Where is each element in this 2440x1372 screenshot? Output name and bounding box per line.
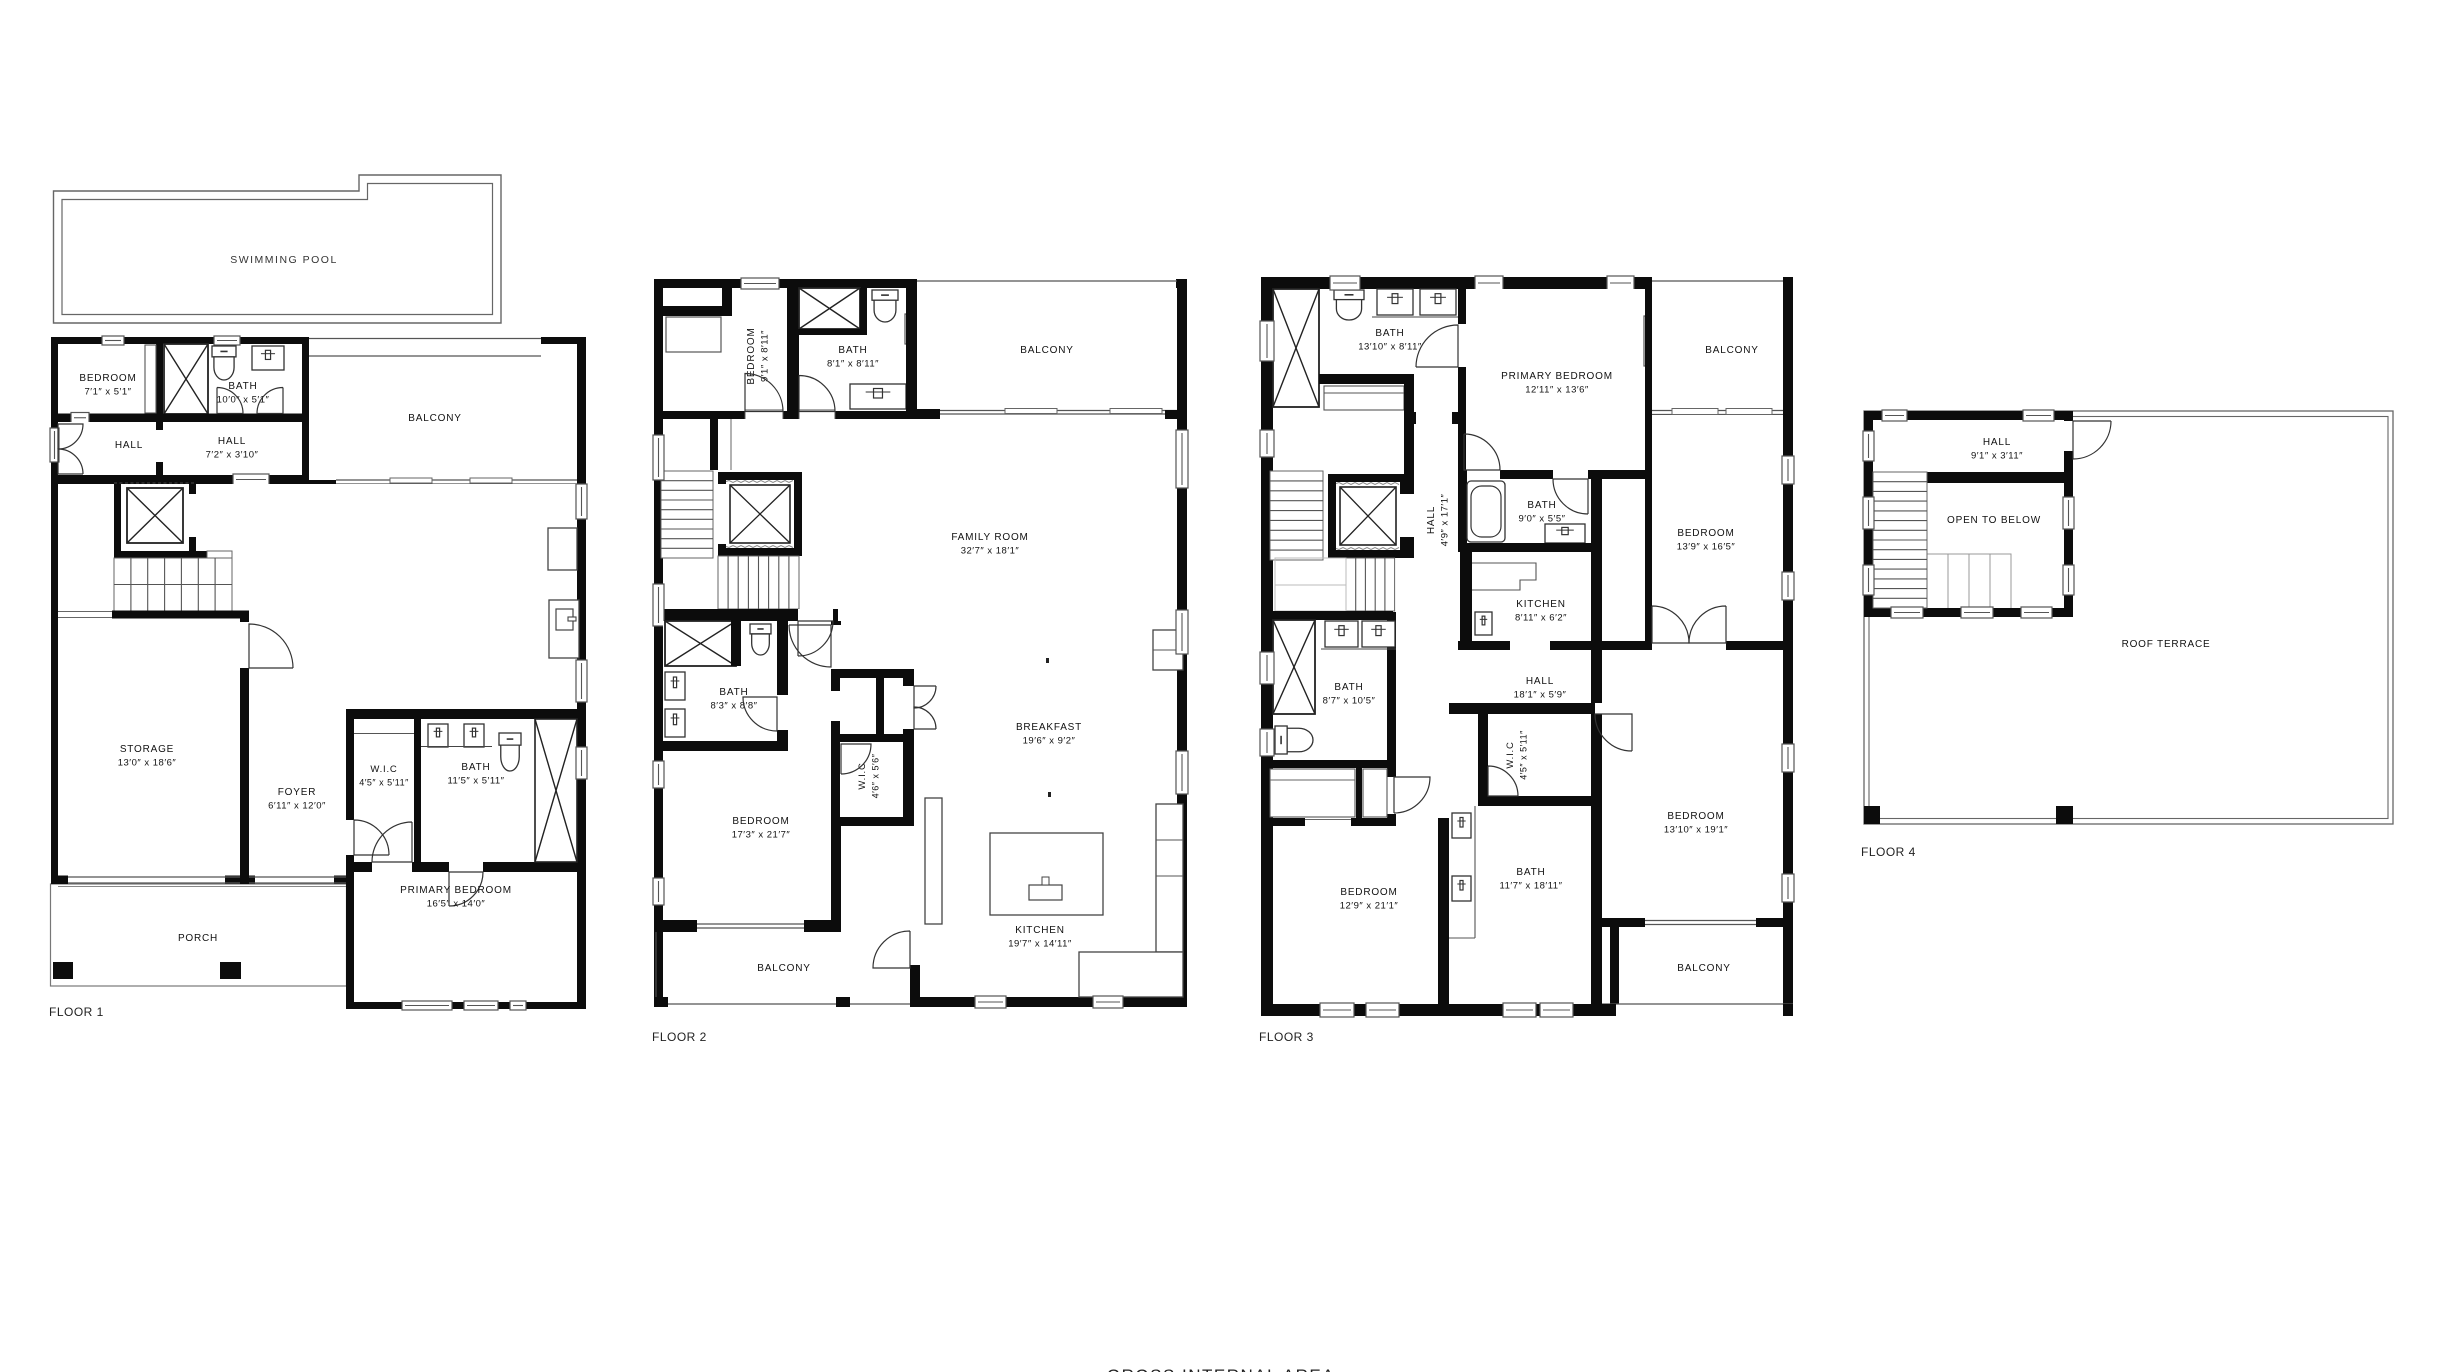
svg-text:HALL: HALL	[1426, 506, 1437, 534]
svg-text:12′11″ x 13′6″: 12′11″ x 13′6″	[1525, 385, 1589, 396]
svg-text:HALL: HALL	[1983, 437, 2011, 448]
svg-text:12′9″ x 21′1″: 12′9″ x 21′1″	[1340, 901, 1399, 912]
svg-text:FLOOR 4: FLOOR 4	[1861, 845, 1916, 859]
svg-text:13′9″ x 16′5″: 13′9″ x 16′5″	[1677, 542, 1736, 553]
svg-text:FLOOR 2: FLOOR 2	[652, 1030, 707, 1044]
svg-text:8′11″ x 6′2″: 8′11″ x 6′2″	[1515, 613, 1567, 624]
svg-text:OPEN TO BELOW: OPEN TO BELOW	[1947, 515, 2041, 526]
svg-text:W.I.C: W.I.C	[857, 762, 868, 789]
svg-text:FLOOR 3: FLOOR 3	[1259, 1030, 1314, 1044]
svg-text:BEDROOM: BEDROOM	[1667, 811, 1724, 822]
svg-text:4′5″ x 5′11″: 4′5″ x 5′11″	[1519, 730, 1529, 780]
svg-text:HALL: HALL	[1526, 676, 1554, 687]
svg-text:FLOOR 1: FLOOR 1	[49, 1005, 104, 1019]
svg-text:STORAGE: STORAGE	[120, 744, 174, 755]
svg-text:18′1″ x 5′9″: 18′1″ x 5′9″	[1514, 690, 1567, 701]
svg-text:BEDROOM: BEDROOM	[1677, 528, 1734, 539]
svg-text:BALCONY: BALCONY	[1705, 345, 1758, 356]
svg-text:11′7″ x 18′11″: 11′7″ x 18′11″	[1500, 881, 1563, 892]
svg-text:11′5″ x 5′11″: 11′5″ x 5′11″	[447, 776, 504, 787]
svg-text:KITCHEN: KITCHEN	[1015, 925, 1065, 936]
svg-text:13′10″ x 19′1″: 13′10″ x 19′1″	[1664, 825, 1728, 836]
svg-text:BEDROOM: BEDROOM	[1340, 887, 1397, 898]
svg-text:BATH: BATH	[1334, 682, 1363, 693]
svg-text:GROSS INTERNAL AREA: GROSS INTERNAL AREA	[1107, 1366, 1335, 1372]
svg-text:9′1″ x 3′11″: 9′1″ x 3′11″	[1971, 451, 2023, 462]
svg-text:W.I.C: W.I.C	[1505, 741, 1516, 768]
svg-text:BALCONY: BALCONY	[408, 413, 461, 424]
svg-text:13′0″ x 18′6″: 13′0″ x 18′6″	[118, 758, 177, 769]
svg-text:BEDROOM: BEDROOM	[79, 373, 136, 384]
svg-text:PORCH: PORCH	[178, 933, 218, 944]
svg-text:13′10″ x 8′11″: 13′10″ x 8′11″	[1358, 342, 1422, 353]
svg-text:8′7″ x 10′5″: 8′7″ x 10′5″	[1323, 696, 1376, 707]
svg-text:8′3″ x 8′8″: 8′3″ x 8′8″	[711, 701, 758, 712]
svg-text:BALCONY: BALCONY	[1677, 963, 1730, 974]
svg-text:9′1″ x 8′11″: 9′1″ x 8′11″	[760, 330, 771, 382]
svg-text:HALL: HALL	[115, 440, 143, 451]
svg-text:FAMILY ROOM: FAMILY ROOM	[951, 532, 1028, 543]
svg-text:7′1″ x 5′1″: 7′1″ x 5′1″	[85, 387, 132, 398]
svg-text:4′9″ x 17′1″: 4′9″ x 17′1″	[1440, 494, 1451, 547]
svg-text:PRIMARY BEDROOM: PRIMARY BEDROOM	[1501, 371, 1613, 382]
svg-text:BATH: BATH	[461, 762, 490, 773]
svg-text:6′11″ x 12′0″: 6′11″ x 12′0″	[268, 801, 326, 812]
svg-text:10′0″ x 5′1″: 10′0″ x 5′1″	[217, 395, 270, 406]
svg-text:BALCONY: BALCONY	[1020, 345, 1073, 356]
svg-text:4′6″ x 5′6″: 4′6″ x 5′6″	[871, 753, 881, 798]
svg-text:8′1″ x 8′11″: 8′1″ x 8′11″	[827, 359, 879, 370]
svg-text:19′6″ x 9′2″: 19′6″ x 9′2″	[1023, 736, 1076, 747]
svg-text:BATH: BATH	[1516, 867, 1545, 878]
svg-text:W.I.C: W.I.C	[370, 764, 397, 775]
svg-text:BATH: BATH	[228, 381, 257, 392]
svg-text:19′7″ x 14′11″: 19′7″ x 14′11″	[1008, 939, 1072, 950]
svg-text:KITCHEN: KITCHEN	[1516, 599, 1566, 610]
svg-text:SWIMMING POOL: SWIMMING POOL	[230, 254, 338, 266]
svg-text:9′0″ x 5′5″: 9′0″ x 5′5″	[1519, 514, 1566, 525]
svg-text:FOYER: FOYER	[278, 787, 316, 798]
svg-text:ROOF TERRACE: ROOF TERRACE	[2122, 639, 2211, 650]
svg-text:BATH: BATH	[719, 687, 748, 698]
svg-text:BREAKFAST: BREAKFAST	[1016, 722, 1082, 733]
svg-text:16′5″ x 14′0″: 16′5″ x 14′0″	[427, 899, 486, 910]
svg-text:BATH: BATH	[1375, 328, 1404, 339]
svg-text:BEDROOM: BEDROOM	[746, 327, 757, 384]
svg-text:4′5″ x 5′11″: 4′5″ x 5′11″	[359, 778, 409, 788]
svg-text:BALCONY: BALCONY	[757, 963, 810, 974]
svg-text:32′7″ x 18′1″: 32′7″ x 18′1″	[961, 546, 1020, 557]
svg-text:PRIMARY BEDROOM: PRIMARY BEDROOM	[400, 885, 512, 896]
svg-text:BEDROOM: BEDROOM	[732, 816, 789, 827]
svg-text:HALL: HALL	[218, 436, 246, 447]
svg-text:BATH: BATH	[1527, 500, 1556, 511]
svg-text:BATH: BATH	[838, 345, 867, 356]
svg-text:17′3″ x 21′7″: 17′3″ x 21′7″	[732, 830, 791, 841]
svg-text:7′2″ x 3′10″: 7′2″ x 3′10″	[206, 450, 259, 461]
